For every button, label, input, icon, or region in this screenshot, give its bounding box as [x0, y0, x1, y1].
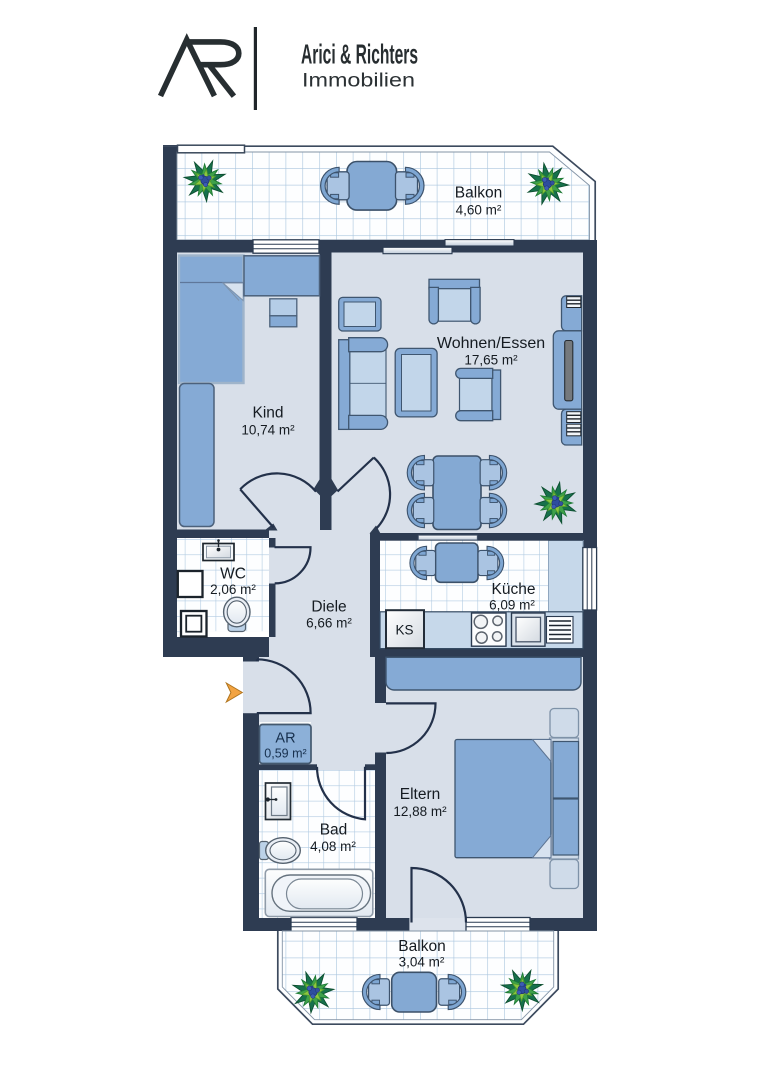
svg-text:10,74 m²: 10,74 m²	[241, 423, 295, 438]
svg-text:Kind: Kind	[252, 405, 283, 422]
svg-text:Eltern: Eltern	[400, 786, 441, 803]
svg-text:4,08 m²: 4,08 m²	[310, 839, 356, 854]
svg-text:2,06 m²: 2,06 m²	[210, 582, 256, 597]
svg-text:17,65 m²: 17,65 m²	[464, 353, 518, 368]
svg-text:Wohnen/Essen: Wohnen/Essen	[437, 335, 545, 352]
svg-text:Immobilien: Immobilien	[302, 70, 415, 92]
svg-text:Arici & Richters: Arici & Richters	[301, 39, 418, 70]
svg-text:WC: WC	[220, 566, 246, 583]
svg-text:KS: KS	[395, 623, 413, 638]
svg-text:12,88 m²: 12,88 m²	[393, 804, 447, 819]
svg-text:0,59 m²: 0,59 m²	[264, 747, 306, 761]
svg-text:3,04 m²: 3,04 m²	[399, 955, 445, 970]
svg-text:4,60 m²: 4,60 m²	[456, 203, 502, 218]
svg-text:AR: AR	[275, 731, 295, 747]
svg-text:6,66 m²: 6,66 m²	[306, 616, 352, 631]
svg-text:Balkon: Balkon	[455, 185, 502, 202]
svg-text:Bad: Bad	[320, 822, 348, 839]
svg-text:Diele: Diele	[311, 599, 346, 616]
svg-text:6,09 m²: 6,09 m²	[489, 598, 535, 613]
svg-text:Balkon: Balkon	[398, 938, 445, 955]
svg-text:Küche: Küche	[492, 581, 536, 598]
